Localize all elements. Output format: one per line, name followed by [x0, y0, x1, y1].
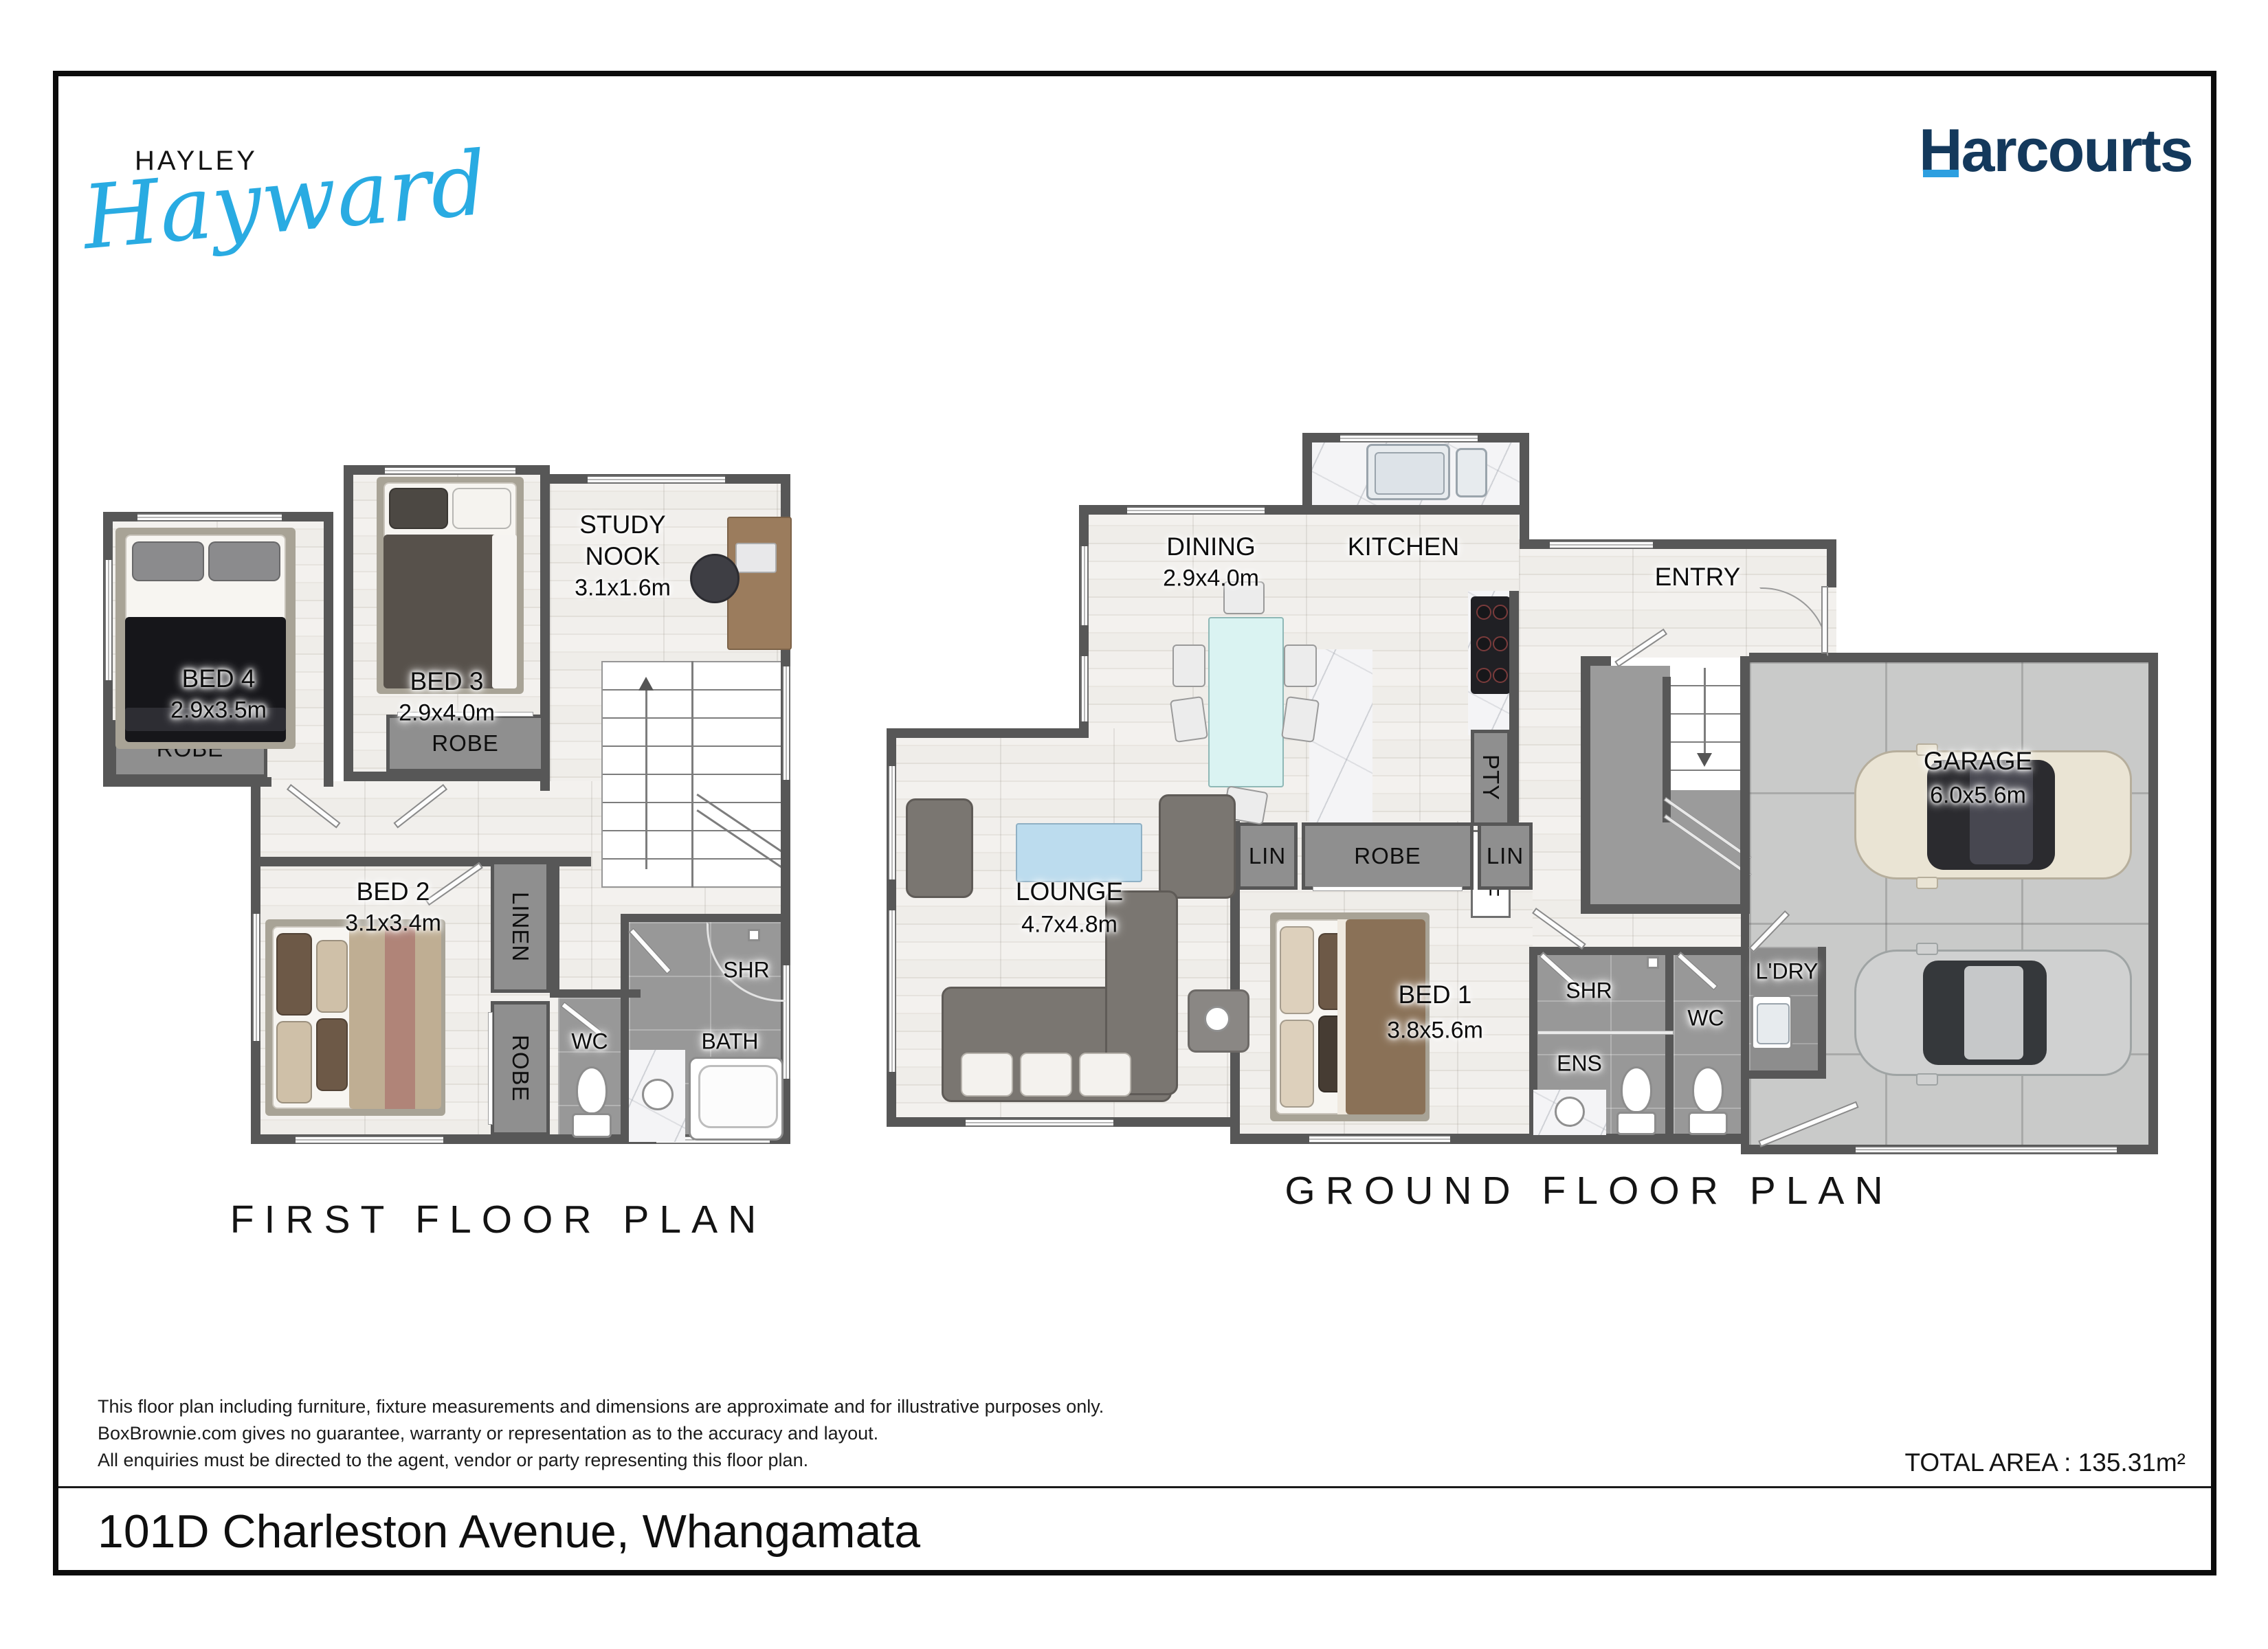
gf-ens-toilet-tank — [1616, 1112, 1656, 1135]
gf-cooktop-burner — [1493, 668, 1508, 683]
gf-sofa-cushion — [1079, 1053, 1131, 1097]
gf-armchair — [1159, 794, 1236, 899]
ff-linen-strip: LINEN — [491, 861, 550, 993]
gf-lin-right-strip: LIN — [1478, 822, 1533, 890]
gf-cooktop-burner — [1493, 636, 1508, 651]
ff-bed4-pillow — [208, 541, 280, 581]
gf-ens-toilet-bowl — [1621, 1066, 1652, 1113]
ff-window — [137, 513, 282, 521]
gf-garage-name: GARAGE — [1924, 747, 2032, 776]
gf-wall — [1520, 433, 1529, 549]
gf-bed1-name: BED 1 — [1399, 980, 1472, 1009]
gf-garage-door-opening — [1856, 1146, 2117, 1154]
gf-car-sedan-mirror — [1916, 943, 1938, 955]
gf-kitchen-sink-half — [1456, 448, 1487, 497]
ff-bed2-name: BED 2 — [357, 877, 430, 906]
ff-study-line1: STUDY — [579, 511, 665, 539]
gf-wall — [1581, 656, 1611, 666]
address-divider-line — [58, 1486, 2211, 1488]
gf-window — [1080, 546, 1089, 625]
gf-window — [888, 910, 896, 1072]
gf-lin-right-label: LIN — [1487, 843, 1524, 869]
gf-dining-chair — [1284, 644, 1317, 687]
ff-shower-head — [748, 929, 760, 941]
gf-window — [888, 766, 896, 879]
ff-stairs-up-arrow — [638, 677, 654, 691]
gf-wall — [1581, 656, 1590, 914]
ff-wall — [251, 777, 260, 866]
ff-desk-monitor — [735, 543, 777, 573]
ff-stairs-arrow-stem — [645, 687, 647, 869]
gf-lounge-dims: 4.7x4.8m — [1021, 912, 1118, 939]
ff-bed2-pillow — [316, 940, 348, 1013]
gf-cooktop-burner — [1476, 636, 1491, 651]
ff-bathtub-inner — [698, 1065, 778, 1128]
ff-study-dims: 3.1x1.6m — [575, 575, 671, 602]
ff-bed2-pillow — [276, 933, 312, 1016]
gf-laundry-tub-inner — [1757, 1003, 1790, 1044]
gf-wall — [1827, 539, 1836, 587]
ff-bed4-pillow — [132, 541, 204, 581]
gf-wc-label: WC — [1687, 1006, 1724, 1031]
gf-ens-shower-head — [1647, 956, 1659, 969]
gf-tv-unit — [1016, 823, 1142, 882]
gf-car-suv-roof — [1970, 765, 2033, 864]
ff-window — [104, 560, 113, 680]
ff-bed3-pillow — [389, 488, 448, 529]
gf-pty-label: PTY — [1478, 754, 1504, 800]
ground-floor-title: GROUND FLOOR PLAN — [1074, 1168, 2104, 1213]
gf-ens-basin — [1555, 1097, 1585, 1127]
ff-window — [296, 1136, 443, 1144]
gf-pantry-strip: PTY — [1471, 730, 1511, 826]
ff-robe-bed2-strip: ROBE — [491, 1001, 550, 1136]
gf-entry-name: ENTRY — [1655, 563, 1741, 592]
gf-kitchen-name: KITCHEN — [1348, 532, 1459, 561]
ff-bed3-pillow — [452, 488, 511, 529]
gf-window — [966, 1119, 1113, 1127]
company-logo: Harcourts — [1919, 115, 2192, 186]
ff-wc-toilet-bowl — [576, 1066, 608, 1114]
ff-wall — [621, 914, 790, 922]
gf-dining-chair — [1172, 644, 1205, 687]
gf-wall — [1302, 433, 1312, 510]
gf-dining-chair — [1170, 696, 1208, 743]
gf-sofa-cushion — [961, 1053, 1013, 1097]
property-address: 101D Charleston Avenue, Whangamata — [98, 1505, 920, 1558]
gf-car-sedan-roof — [1964, 966, 2023, 1059]
gf-window — [1127, 506, 1265, 515]
disclaimer-line-1: This floor plan including furniture, fix… — [98, 1393, 1266, 1420]
ff-bed4-dims: 2.9x3.5m — [170, 697, 267, 724]
gf-car-sedan-mirror — [1916, 1073, 1938, 1086]
gf-cooktop-burner — [1476, 605, 1491, 620]
gf-kitchen-sink-inner — [1375, 452, 1445, 495]
gf-ens-label: ENS — [1557, 1051, 1602, 1077]
gf-wall — [1581, 904, 1750, 914]
first-floor-title: FIRST FLOOR PLAN — [103, 1197, 893, 1242]
gf-window — [1340, 434, 1478, 442]
gf-window — [1550, 541, 1653, 549]
gf-entry-door-leaf — [1821, 586, 1828, 653]
gf-window — [1080, 656, 1089, 721]
ff-robe-bed2-doors — [488, 1012, 493, 1125]
gf-stairs-down-arrow — [1697, 753, 1712, 767]
ff-vanity-basin — [642, 1079, 674, 1110]
gf-wall — [1818, 947, 1826, 1079]
gf-stairs-arrow-stem — [1704, 668, 1706, 756]
ff-robe-bed3-label: ROBE — [432, 730, 499, 756]
floor-plan-page: { "brand": { "agent_first": "HAYLEY", "a… — [0, 0, 2268, 1649]
gf-ldry-label: L'DRY — [1756, 959, 1819, 985]
ff-shr-label: SHR — [723, 958, 770, 983]
gf-sofa-cushion — [1020, 1053, 1072, 1097]
ff-window — [588, 475, 725, 484]
ff-desk-chair — [690, 554, 740, 603]
ff-wall — [103, 777, 271, 787]
gf-cooktop-burner — [1493, 605, 1508, 620]
gf-dining-chair — [1281, 696, 1320, 743]
gf-dining-table — [1208, 617, 1284, 787]
ff-bed2-pillow — [316, 1018, 348, 1091]
gf-car-suv-mirror — [1916, 877, 1938, 889]
gf-bed1-pillow — [1280, 1020, 1314, 1108]
ff-robe-bed2-label: ROBE — [507, 1035, 533, 1102]
gf-wall — [1741, 656, 1749, 1154]
ff-bed2-duvet-accent — [385, 926, 415, 1109]
gf-garage-floor — [1749, 662, 2158, 1154]
ff-window — [252, 914, 260, 1041]
ff-wall — [324, 512, 333, 787]
gf-robe-doors — [1313, 886, 1463, 891]
gf-bed1-pillow — [1280, 926, 1314, 1014]
gf-armchair — [906, 798, 973, 898]
gf-lin-left-label: LIN — [1249, 843, 1286, 869]
ff-bed4-name: BED 4 — [182, 664, 256, 693]
gf-wall — [2148, 653, 2158, 1154]
gf-shr-label: SHR — [1566, 978, 1612, 1004]
gf-ens-shower-screen — [1537, 1031, 1674, 1035]
ff-study-line2: NOOK — [586, 542, 660, 571]
ff-wall — [550, 857, 559, 998]
gf-robe-label: ROBE — [1354, 843, 1421, 869]
ff-wall — [344, 465, 353, 781]
gf-wall — [1529, 947, 1749, 955]
gf-garage-dims: 6.0x5.6m — [1930, 783, 2026, 809]
gf-dining-dims: 2.9x4.0m — [1163, 565, 1259, 592]
ff-bed3-name: BED 3 — [410, 667, 484, 696]
ff-wall — [621, 914, 629, 1144]
gf-lin-left-strip: LIN — [1237, 822, 1298, 890]
gf-bed1-dims: 3.8x5.6m — [1387, 1018, 1483, 1044]
ff-wc-label: WC — [571, 1029, 608, 1055]
gf-side-table-lamp — [1204, 1006, 1230, 1032]
gf-dining-name: DINING — [1166, 532, 1256, 561]
ff-bed3-dims: 2.9x4.0m — [399, 700, 495, 727]
ff-linen-label: LINEN — [507, 892, 533, 962]
gf-window — [1309, 1135, 1450, 1143]
gf-lounge-name: LOUNGE — [1016, 877, 1123, 906]
gf-wall — [1665, 947, 1674, 1137]
ff-wall — [344, 772, 550, 781]
ff-bed2-dims: 3.1x3.4m — [345, 910, 441, 937]
ff-window — [782, 666, 790, 780]
gf-cooktop-burner — [1476, 668, 1491, 683]
disclaimer-line-2: BoxBrownie.com gives no guarantee, warra… — [98, 1420, 1266, 1447]
ff-window — [385, 467, 515, 475]
ff-bath-label: BATH — [702, 1029, 759, 1055]
company-logo-underline — [1923, 170, 1959, 177]
gf-wc-toilet-bowl — [1692, 1066, 1724, 1113]
ff-bed2-pillow — [276, 1021, 312, 1103]
ff-wc-toilet-tank — [572, 1113, 612, 1138]
gf-wc-toilet-tank — [1688, 1112, 1728, 1135]
disclaimer-line-3: All enquiries must be directed to the ag… — [98, 1447, 1266, 1474]
gf-wall — [887, 728, 1087, 738]
total-area: TOTAL AREA : 135.31m² — [1498, 1448, 2186, 1477]
ff-stairs-stringer — [691, 661, 693, 888]
ff-bed3-sheet — [492, 535, 517, 688]
gf-wall — [1749, 1070, 1826, 1079]
gf-robe-strip: ROBE — [1302, 822, 1474, 890]
